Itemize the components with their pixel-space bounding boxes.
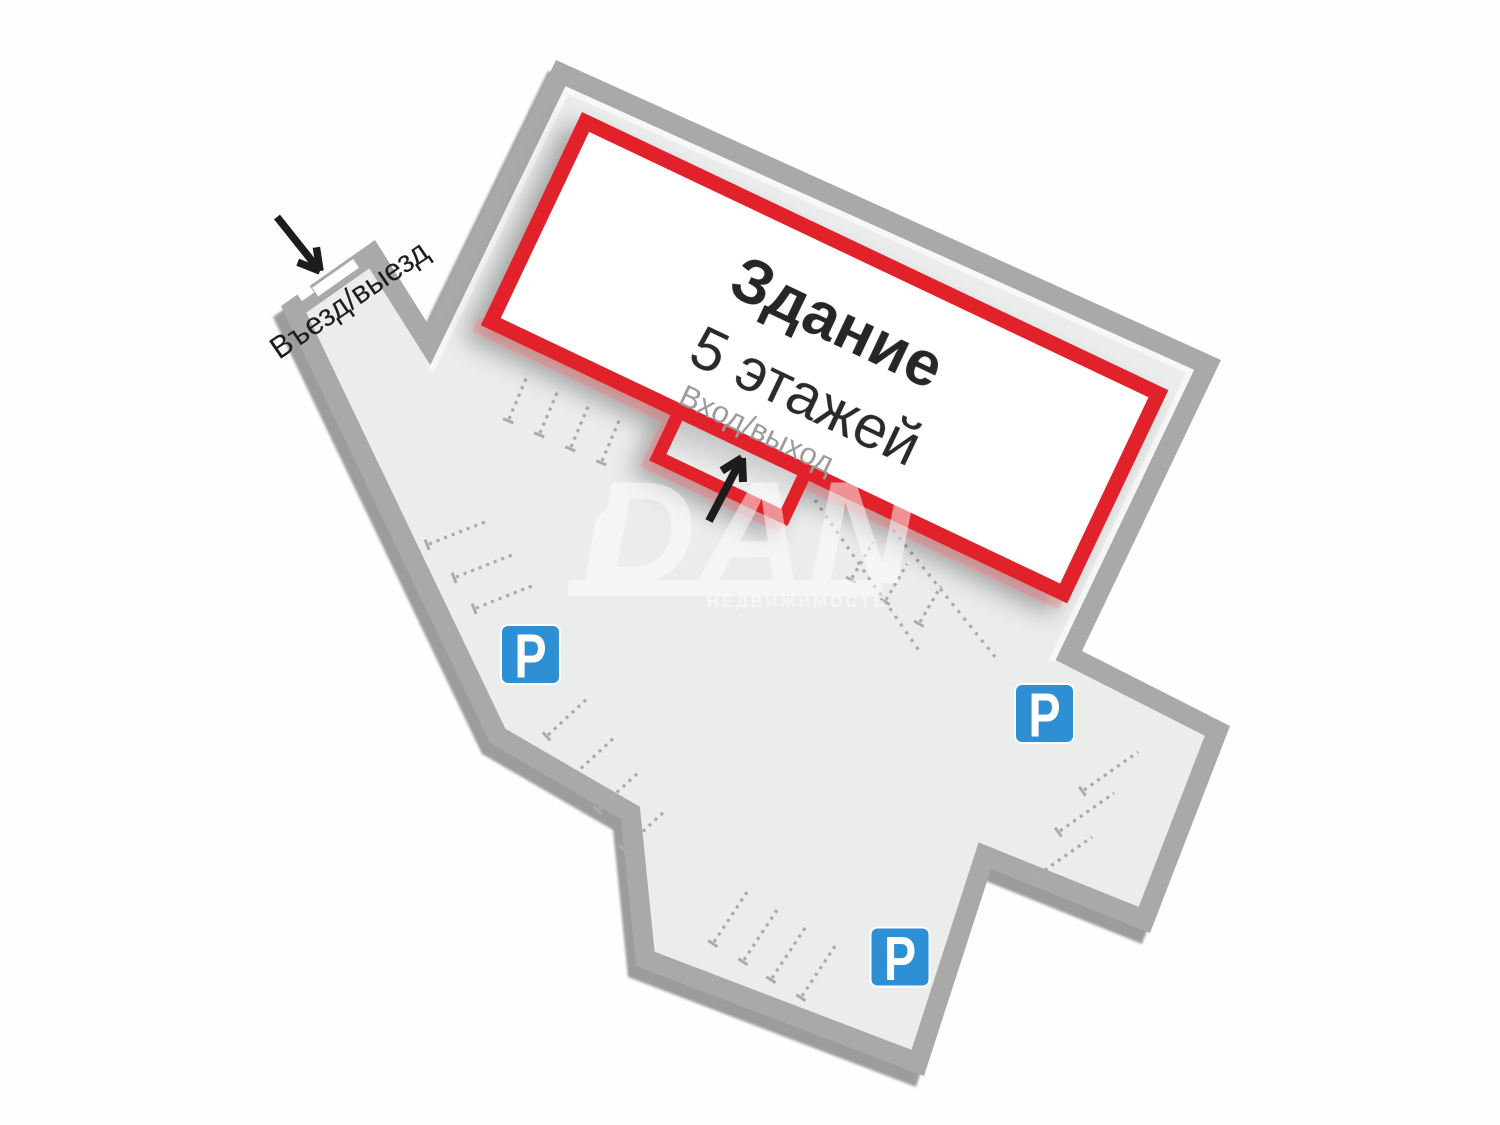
svg-text:P: P	[1028, 681, 1060, 750]
svg-text:P: P	[884, 924, 916, 993]
svg-text:P: P	[514, 622, 546, 691]
svg-text:НЕДВИЖИМОСТЬ: НЕДВИЖИМОСТЬ	[707, 593, 888, 611]
